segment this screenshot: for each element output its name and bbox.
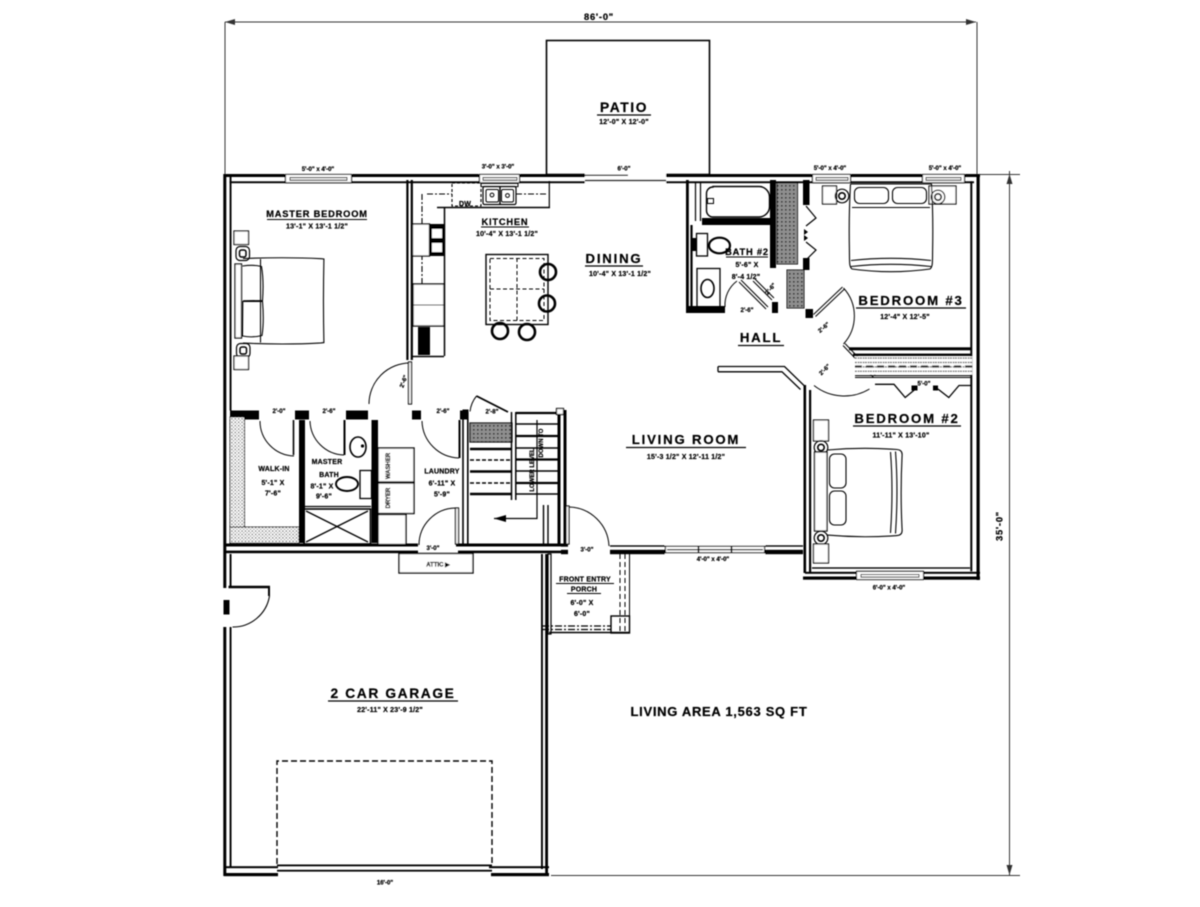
svg-text:2'-6": 2'-6" [323,409,336,415]
svg-text:HALL: HALL [740,330,782,345]
svg-text:LAUNDRY: LAUNDRY [424,469,459,476]
svg-text:BATH: BATH [319,472,339,479]
svg-text:5'-0" x 4'-0": 5'-0" x 4'-0" [814,166,847,172]
svg-text:5'-0": 5'-0" [918,382,931,388]
svg-text:5'-1" X: 5'-1" X [261,480,284,487]
svg-text:11'-11" X 13'-10": 11'-11" X 13'-10" [873,433,930,440]
svg-text:PATIO: PATIO [600,100,648,115]
svg-text:35'-0": 35'-0" [995,511,1005,541]
svg-text:2'-6": 2'-6" [741,308,754,314]
svg-text:DOWN TO: DOWN TO [539,428,545,457]
svg-text:ATTIC ▶: ATTIC ▶ [426,562,450,569]
svg-text:LIVING AREA 1,563 SQ FT: LIVING AREA 1,563 SQ FT [631,704,808,719]
svg-text:LOWER LEVEL: LOWER LEVEL [530,448,536,492]
svg-text:MASTER: MASTER [312,459,343,466]
svg-text:2'-8": 2'-8" [486,410,499,416]
svg-text:6'-11" X: 6'-11" X [429,481,456,488]
svg-text:6'-0" x 4'-0": 6'-0" x 4'-0" [873,586,906,592]
svg-text:BEDROOM #3: BEDROOM #3 [858,293,963,308]
svg-text:6'-0": 6'-0" [618,167,631,173]
svg-text:6'-0": 6'-0" [574,611,590,618]
svg-text:3'-0" x 3'-0": 3'-0" x 3'-0" [482,165,515,171]
svg-text:FRONT ENTRY: FRONT ENTRY [559,577,611,584]
svg-text:10'-4" X 13'-1 1/2": 10'-4" X 13'-1 1/2" [589,271,651,278]
svg-text:7'-6": 7'-6" [265,491,281,498]
svg-text:DRYER: DRYER [386,487,392,508]
svg-text:2'-0": 2'-0" [273,409,286,415]
svg-text:WASHER: WASHER [386,452,392,479]
svg-text:DINING: DINING [586,251,643,266]
svg-text:5'-0" x 4'-0": 5'-0" x 4'-0" [302,167,335,173]
svg-text:8'-1" X: 8'-1" X [310,484,333,491]
svg-text:6'-0" X: 6'-0" X [570,600,593,607]
svg-text:5'-0" x 4'-0": 5'-0" x 4'-0" [929,166,962,172]
svg-text:8'-4 1/2": 8'-4 1/2" [732,274,761,281]
svg-text:86'-0": 86'-0" [584,12,614,22]
svg-text:15'-3 1/2" X 12'-11 1/2": 15'-3 1/2" X 12'-11 1/2" [647,454,725,461]
svg-text:WALK-IN: WALK-IN [258,466,289,473]
svg-text:2'-6": 2'-6" [437,409,450,415]
svg-text:5'-6" X: 5'-6" X [735,262,758,269]
svg-text:12'-4" X 12'-5": 12'-4" X 12'-5" [880,314,930,321]
svg-text:BATH #2: BATH #2 [725,247,769,257]
svg-text:PORCH: PORCH [571,587,597,594]
svg-text:3'-0": 3'-0" [427,546,440,552]
svg-text:16'-0": 16'-0" [377,881,393,887]
svg-text:KITCHEN: KITCHEN [482,217,529,227]
svg-text:10'-4" X 13'-1 1/2": 10'-4" X 13'-1 1/2" [476,231,538,238]
svg-text:13'-1" X 13'-1 1/2": 13'-1" X 13'-1 1/2" [286,224,348,231]
svg-text:BEDROOM #2: BEDROOM #2 [854,411,959,426]
svg-text:22'-11" X 23'-9 1/2": 22'-11" X 23'-9 1/2" [357,707,423,714]
svg-text:5'-9": 5'-9" [434,492,450,499]
svg-text:MASTER BEDROOM: MASTER BEDROOM [266,209,368,219]
svg-text:4'-0" x 4'-0": 4'-0" x 4'-0" [697,557,730,563]
svg-text:LIVING ROOM: LIVING ROOM [632,432,740,447]
svg-text:2 CAR GARAGE: 2 CAR GARAGE [331,686,456,701]
svg-text:12'-0" X 12'-0": 12'-0" X 12'-0" [599,119,649,126]
svg-text:9'-6": 9'-6" [316,494,332,501]
svg-text:3'-0": 3'-0" [581,548,594,554]
